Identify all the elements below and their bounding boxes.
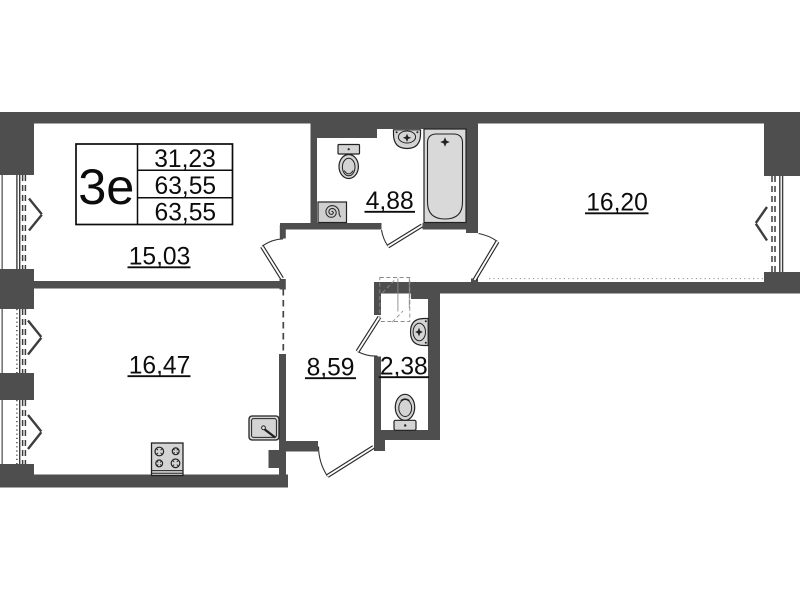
- svg-text:3е: 3е: [78, 158, 134, 215]
- svg-text:63,55: 63,55: [155, 200, 217, 227]
- svg-text:63,55: 63,55: [155, 173, 217, 200]
- svg-text:31,23: 31,23: [154, 146, 216, 173]
